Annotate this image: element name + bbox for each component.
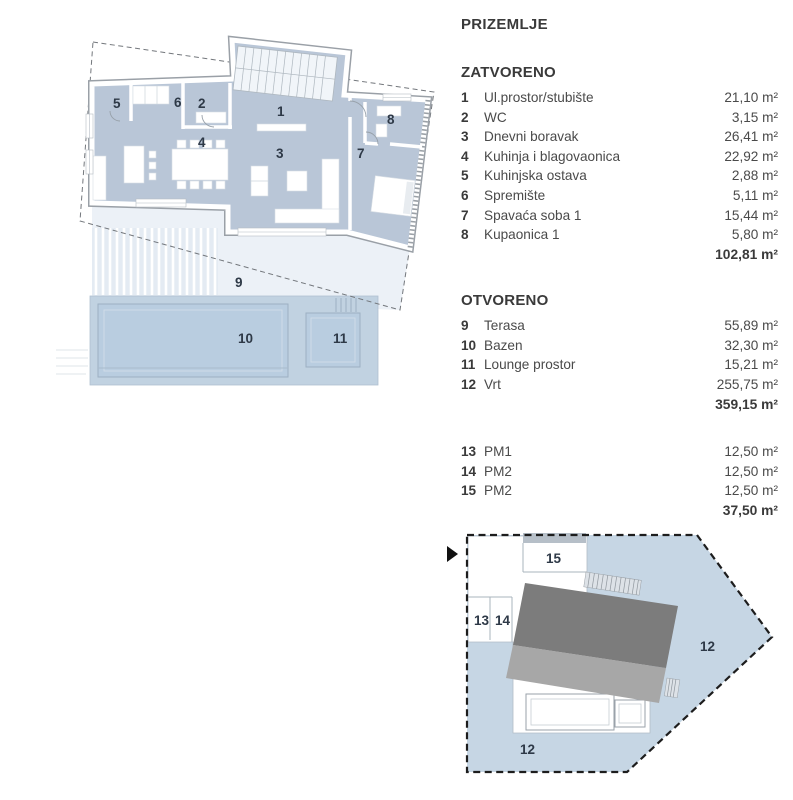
room-name: PM2: [477, 481, 724, 501]
site-label-15: 15: [546, 551, 562, 566]
room-number: 8: [461, 225, 477, 245]
section-total: 102,81 m²: [461, 245, 778, 266]
legend-section: OTVORENO 9Terasa55,89 m²10Bazen32,30 m²1…: [461, 292, 778, 415]
site-label-13: 13: [474, 613, 490, 628]
room-label-5: 5: [113, 96, 121, 111]
room-name: PM2: [477, 462, 724, 482]
wc-fixtures: [196, 112, 226, 123]
room-name: Lounge prostor: [477, 355, 724, 375]
room-name: Spavaća soba 1: [477, 206, 724, 226]
entrance-arrow-icon: [447, 546, 458, 562]
room-label-8: 8: [387, 112, 395, 127]
site-label-14: 14: [495, 613, 511, 628]
room-number: 3: [461, 127, 477, 147]
legend-row: 1Ul.prostor/stubište21,10 m²: [461, 88, 778, 108]
legend-row: 12Vrt255,75 m²: [461, 375, 778, 395]
site-label-12: 12: [520, 742, 535, 757]
room-area: 2,88 m²: [732, 166, 778, 186]
legend-row: 15PM212,50 m²: [461, 481, 778, 501]
room-label-4: 4: [198, 135, 206, 150]
room-area: 3,15 m²: [732, 108, 778, 128]
legend-row: 7Spavaća soba 115,44 m²: [461, 206, 778, 226]
room-number: 7: [461, 206, 477, 226]
room-area: 22,92 m²: [724, 147, 778, 167]
legend-row: 8Kupaonica 15,80 m²: [461, 225, 778, 245]
room-number: 9: [461, 316, 477, 336]
room-label-7: 7: [357, 146, 365, 161]
section-total: 37,50 m²: [461, 501, 778, 522]
room-area: 12,50 m²: [724, 481, 778, 501]
section-rows: 13PM112,50 m²14PM212,50 m²15PM212,50 m²: [461, 442, 778, 501]
room-number: 4: [461, 147, 477, 167]
room-name: Ul.prostor/stubište: [477, 88, 724, 108]
legend-row: 14PM212,50 m²: [461, 462, 778, 482]
sofa: [275, 209, 339, 223]
room-name: Spremište: [477, 186, 733, 206]
room-number: 1: [461, 88, 477, 108]
room-area: 12,50 m²: [724, 462, 778, 482]
site-label-12: 12: [700, 639, 715, 654]
kitchen-island: [124, 146, 144, 183]
room-name: Kuhinjska ostava: [477, 166, 732, 186]
room-label-1: 1: [277, 104, 285, 119]
toilet: [376, 124, 387, 137]
room-label-2: 2: [198, 96, 206, 111]
room-name: Terasa: [477, 316, 724, 336]
room-area: 5,11 m²: [733, 186, 778, 206]
terrace-deck-stripes: [92, 228, 218, 295]
legend-sections: ZATVORENO 1Ul.prostor/stubište21,10 m²2W…: [461, 64, 778, 521]
room-name: Vrt: [477, 375, 717, 395]
room-name: Kupaonica 1: [477, 225, 732, 245]
kitchen-counter: [93, 156, 106, 200]
room-area: 55,89 m²: [724, 316, 778, 336]
legend-section: 13PM112,50 m²14PM212,50 m²15PM212,50 m² …: [461, 442, 778, 521]
room-area: 15,21 m²: [724, 355, 778, 375]
bed: [371, 176, 415, 217]
room-number: 2: [461, 108, 477, 128]
site-plan-drawing: 1212131415: [438, 528, 793, 796]
legend-row: 4Kuhinja i blagovaonica22,92 m²: [461, 147, 778, 167]
sideboard: [257, 124, 306, 131]
room-name: Bazen: [477, 336, 724, 356]
room-label-9: 9: [235, 275, 243, 290]
floor-plan-page: 1234567891011 PRIZEMLJE ZATVORENO 1Ul.pr…: [0, 0, 793, 800]
section-total: 359,15 m²: [461, 395, 778, 416]
room-name: Kuhinja i blagovaonica: [477, 147, 724, 167]
floor-plan-drawing: 1234567891011: [40, 18, 460, 400]
legend-section: ZATVORENO 1Ul.prostor/stubište21,10 m²2W…: [461, 64, 778, 265]
room-area: 12,50 m²: [724, 442, 778, 462]
garden-steps: [56, 350, 88, 374]
legend-row: 5Kuhinjska ostava2,88 m²: [461, 166, 778, 186]
room-label-6: 6: [174, 95, 182, 110]
room-name: Dnevni boravak: [477, 127, 724, 147]
site-steps-hatch: [664, 678, 680, 698]
dining-table: [172, 149, 228, 180]
room-number: 10: [461, 336, 477, 356]
room-number: 15: [461, 481, 477, 501]
room-area: 255,75 m²: [717, 375, 778, 395]
room-area: 15,44 m²: [724, 206, 778, 226]
coffee-table: [287, 171, 307, 191]
room-number: 5: [461, 166, 477, 186]
legend-panel: PRIZEMLJE ZATVORENO 1Ul.prostor/stubište…: [461, 16, 778, 521]
section-rows: 9Terasa55,89 m²10Bazen32,30 m²11Lounge p…: [461, 316, 778, 394]
room-number: 13: [461, 442, 477, 462]
legend-row: 2WC3,15 m²: [461, 108, 778, 128]
room-name: WC: [477, 108, 732, 128]
room-label-11: 11: [333, 331, 348, 346]
room-label-3: 3: [276, 146, 284, 161]
page-title: PRIZEMLJE: [461, 16, 778, 33]
room-number: 14: [461, 462, 477, 482]
section-heading: OTVORENO: [461, 292, 778, 309]
pool: [98, 304, 288, 377]
legend-row: 10Bazen32,30 m²: [461, 336, 778, 356]
room-label-10: 10: [238, 331, 253, 346]
legend-row: 11Lounge prostor15,21 m²: [461, 355, 778, 375]
legend-row: 13PM112,50 m²: [461, 442, 778, 462]
room-number: 6: [461, 186, 477, 206]
section-rows: 1Ul.prostor/stubište21,10 m²2WC3,15 m²3D…: [461, 88, 778, 245]
room-number: 12: [461, 375, 477, 395]
room-name: PM1: [477, 442, 724, 462]
room-area: 21,10 m²: [724, 88, 778, 108]
legend-row: 9Terasa55,89 m²: [461, 316, 778, 336]
room-area: 5,80 m²: [732, 225, 778, 245]
section-heading: ZATVORENO: [461, 64, 778, 81]
room-area: 26,41 m²: [724, 127, 778, 147]
legend-row: 6Spremište5,11 m²: [461, 186, 778, 206]
room-number: 11: [461, 355, 477, 375]
legend-row: 3Dnevni boravak26,41 m²: [461, 127, 778, 147]
room-area: 32,30 m²: [724, 336, 778, 356]
